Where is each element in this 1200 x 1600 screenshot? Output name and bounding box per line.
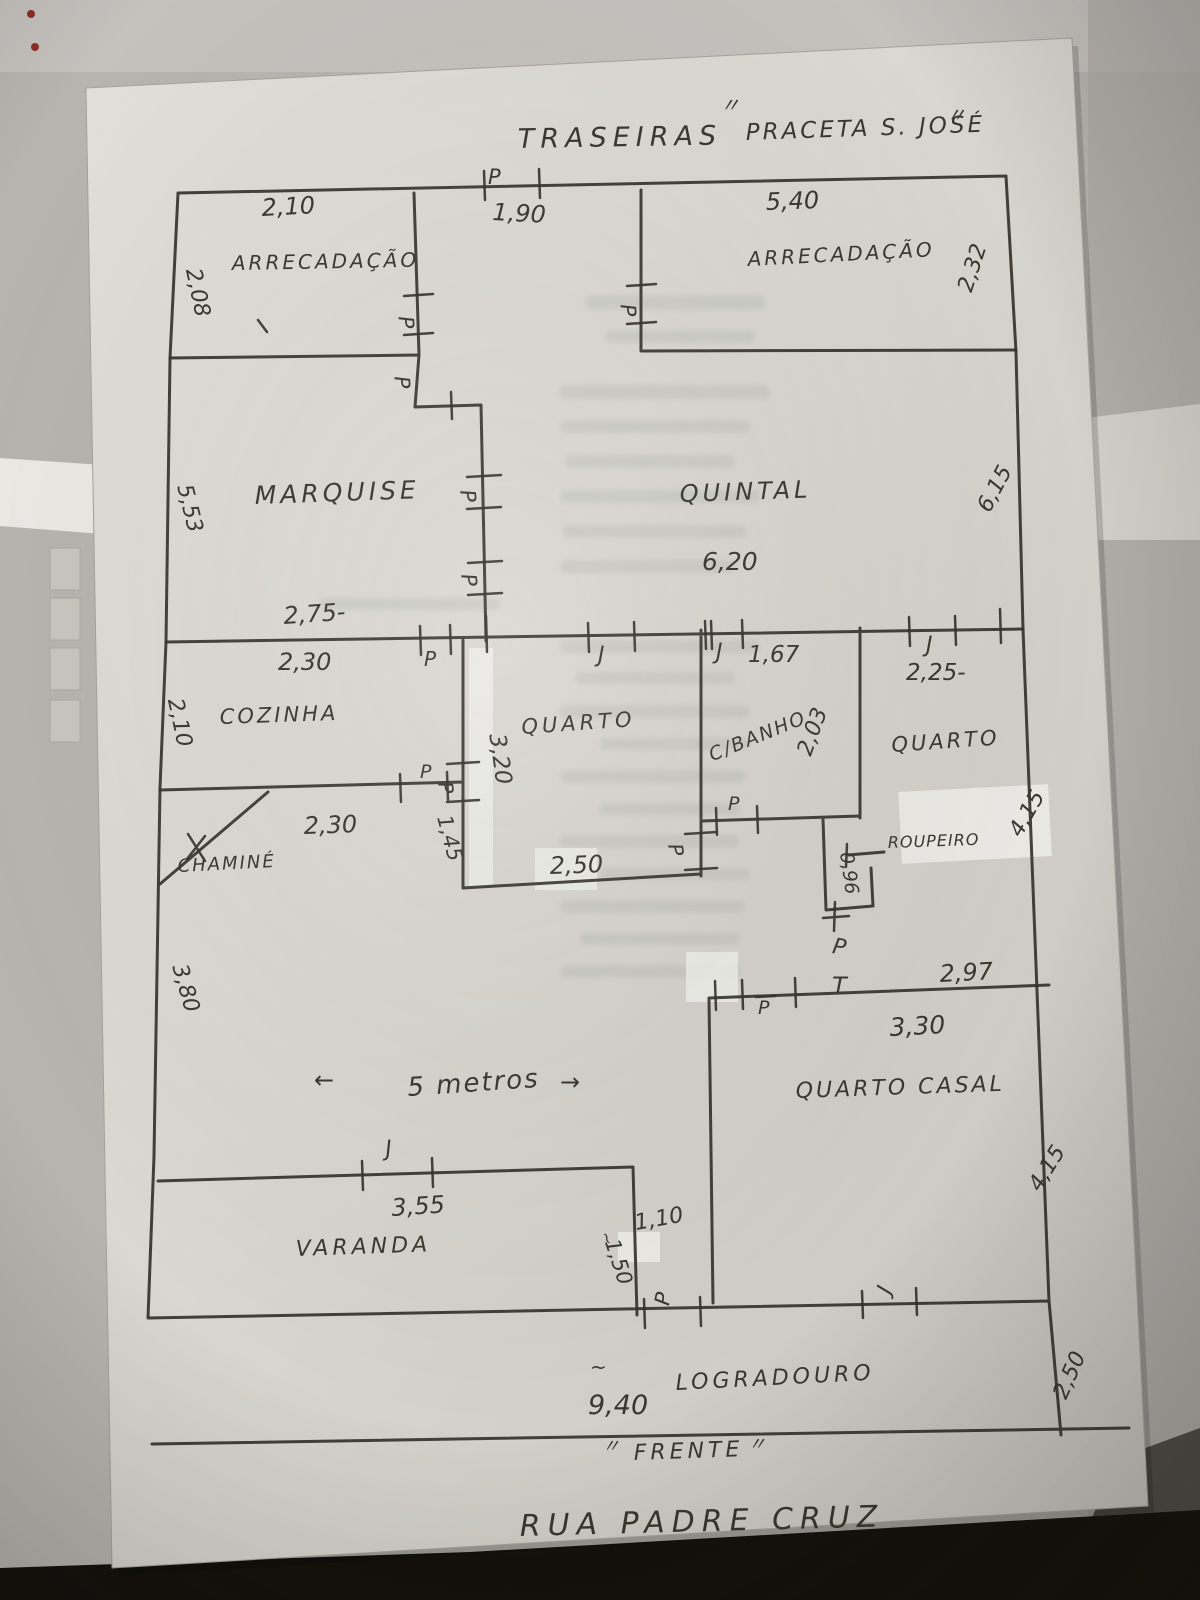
- floor-plan-sketch: TRASEIRAS 〃 PRACETA S. JOSÉ 〃 2,10 P 1,9…: [0, 0, 1200, 1600]
- photo-of-floor-plan: TRASEIRAS 〃 PRACETA S. JOSÉ 〃 2,10 P 1,9…: [0, 0, 1200, 1600]
- photo-vignette: [0, 0, 1200, 1600]
